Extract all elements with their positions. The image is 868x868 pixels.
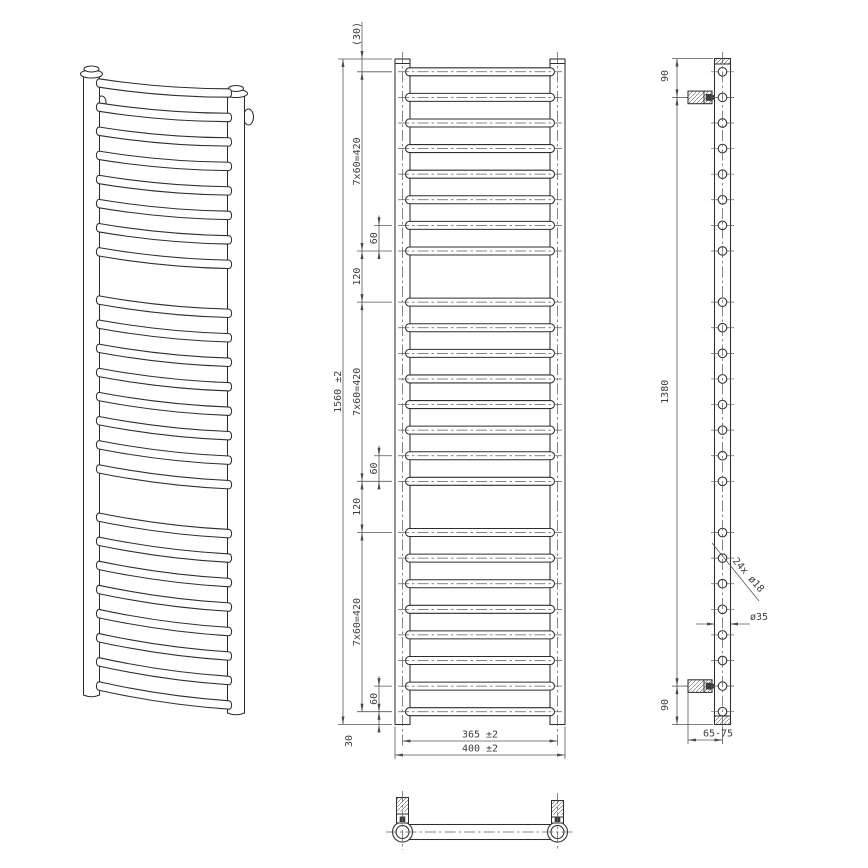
left-cap-top	[84, 66, 99, 72]
dim-bracket-depth: 65-75	[703, 729, 733, 740]
dim-group-gap-2: 120	[352, 498, 363, 516]
dim-group-pitch-3: 7x60=420	[352, 598, 363, 646]
dim-pitch-2: 60	[369, 462, 380, 474]
dim-top-bracket-offset: 90	[660, 70, 671, 82]
dim-bottom-bracket-offset: 90	[660, 699, 671, 711]
left-tube-3d	[84, 75, 100, 697]
drawing-sheet: (30) 7x60=420 7x60=420 7x60=420 60 60 60…	[0, 0, 868, 868]
dim-bracket-span: 1380	[660, 380, 671, 404]
perspective-rungs	[96, 79, 231, 709]
dim-bottom-offset: 30	[344, 735, 355, 747]
dim-top-offset: (30)	[352, 22, 363, 46]
dim-overall-width: 400 ±2	[462, 744, 498, 755]
dim-group-pitch-2: 7x60=420	[352, 368, 363, 416]
dim-rung-holes: 24x ø18	[730, 556, 766, 595]
dim-pitch-1: 60	[369, 232, 380, 244]
dim-axis-width: 365 ±2	[462, 730, 498, 741]
technical-drawing: (30) 7x60=420 7x60=420 7x60=420 60 60 60…	[0, 0, 868, 868]
dim-group-pitch-1: 7x60=420	[352, 137, 363, 185]
dim-tube-diameter: ø35	[750, 612, 768, 623]
side-view	[684, 52, 734, 731]
perspective-view	[81, 66, 254, 715]
front-view	[395, 52, 565, 748]
dim-pitch-3: 60	[369, 693, 380, 705]
front-rungs	[398, 68, 562, 716]
top-view	[386, 791, 574, 850]
top-view-brackets	[397, 798, 564, 824]
dim-overall-height: 1560 ±2	[333, 371, 344, 413]
dim-group-gap-1: 120	[352, 268, 363, 286]
